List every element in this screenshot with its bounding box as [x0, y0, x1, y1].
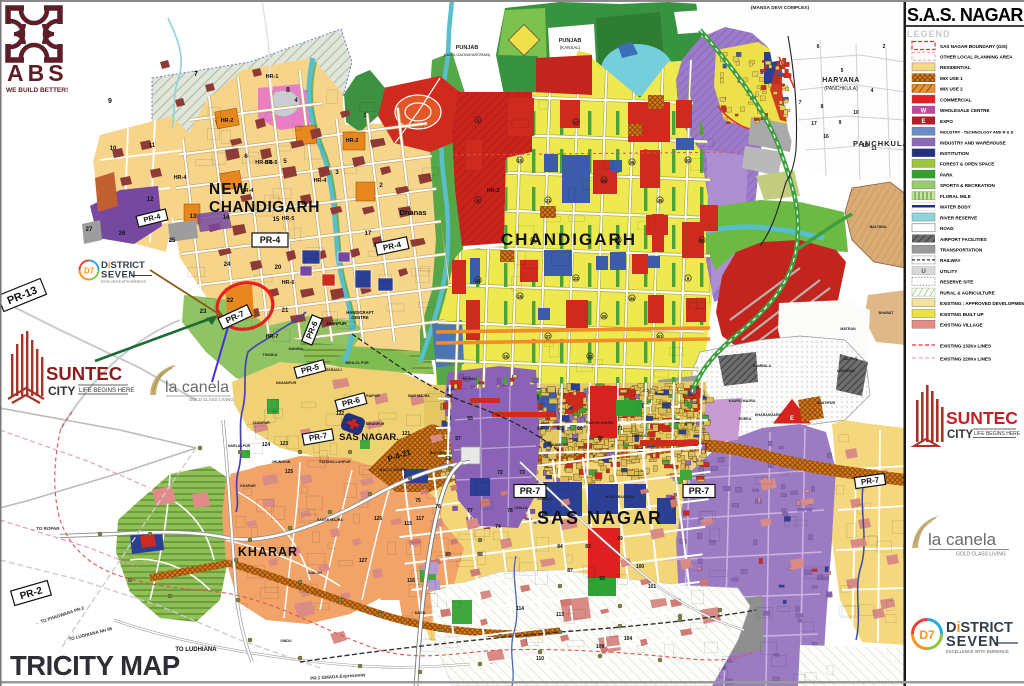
svg-text:BALONGI: BALONGI — [430, 451, 447, 455]
svg-text:64: 64 — [537, 426, 543, 432]
svg-text:22: 22 — [227, 298, 234, 304]
svg-text:MIX USE 2: MIX USE 2 — [940, 87, 963, 92]
svg-text:121: 121 — [402, 431, 411, 437]
svg-text:26: 26 — [119, 231, 126, 237]
svg-text:SEVEN: SEVEN — [946, 634, 1000, 650]
svg-text:15: 15 — [273, 217, 280, 223]
svg-text:KHARAR: KHARAR — [240, 484, 256, 488]
svg-text:RAIPUR: RAIPUR — [366, 394, 380, 398]
svg-text:EXISTING 132Kv LINES: EXISTING 132Kv LINES — [940, 344, 991, 349]
svg-text:D7: D7 — [84, 267, 95, 276]
svg-text:MATRAN: MATRAN — [840, 327, 856, 331]
svg-text:SAS NAGAR.: SAS NAGAR. — [339, 432, 399, 443]
svg-text:KHARAR: KHARAR — [238, 545, 298, 559]
svg-text:108: 108 — [596, 644, 605, 650]
svg-text:122: 122 — [336, 411, 345, 417]
svg-text:17: 17 — [811, 121, 817, 127]
svg-text:SPORTS & RECREATION: SPORTS & RECREATION — [940, 183, 995, 188]
svg-text:JALPUR: JALPUR — [843, 357, 858, 361]
svg-text:PARK: PARK — [940, 172, 953, 177]
svg-text:INDUSTRY AND WAREHOUSE: INDUSTRY AND WAREHOUSE — [940, 140, 1006, 145]
svg-text:FOREST & OPEN SPACE: FOREST & OPEN SPACE — [940, 162, 994, 167]
svg-text:8: 8 — [821, 104, 824, 110]
svg-text:15: 15 — [504, 354, 509, 359]
svg-text:EXCELLENCE WITH EMINENCE: EXCELLENCE WITH EMINENCE — [101, 280, 146, 284]
svg-text:BACLO MAJRA: BACLO MAJRA — [380, 468, 407, 472]
svg-text:18: 18 — [862, 143, 868, 149]
svg-text:TARAULI: TARAULI — [326, 368, 342, 372]
svg-text:RESIDENTIAL: RESIDENTIAL — [940, 65, 971, 70]
svg-text:HR-5: HR-5 — [265, 160, 278, 166]
svg-text:HR-2: HR-2 — [487, 188, 500, 194]
svg-text:SIRANPUR: SIRANPUR — [366, 422, 385, 426]
svg-text:70: 70 — [597, 436, 603, 442]
svg-text:101: 101 — [648, 584, 657, 590]
svg-text:HR-2: HR-2 — [221, 118, 234, 124]
svg-text:93: 93 — [599, 576, 605, 582]
svg-text:27: 27 — [86, 227, 93, 233]
svg-text:RURKA: RURKA — [739, 417, 752, 421]
svg-text:24: 24 — [224, 262, 231, 268]
svg-text:30: 30 — [602, 314, 607, 319]
svg-text:21: 21 — [282, 308, 289, 314]
svg-text:PUNJAB: PUNJAB — [559, 38, 582, 44]
svg-text:TO LUDHIANA: TO LUDHIANA — [175, 647, 217, 653]
svg-text:66: 66 — [577, 426, 583, 432]
svg-text:CHILLA: CHILLA — [514, 506, 528, 510]
svg-text:12: 12 — [147, 197, 154, 203]
svg-text:7: 7 — [799, 100, 802, 106]
svg-text:87: 87 — [567, 568, 573, 574]
svg-text:HARLALPUR: HARLALPUR — [228, 444, 251, 448]
svg-text:BALTANA: BALTANA — [870, 225, 887, 229]
svg-text:2: 2 — [883, 44, 886, 50]
svg-text:INDUSTRY - TECHNOLOGY AND R &: INDUSTRY - TECHNOLOGY AND R & D — [940, 130, 1014, 135]
svg-text:HR-4: HR-4 — [174, 175, 188, 181]
svg-text:MAULI BAIDWAN: MAULI BAIDWAN — [605, 495, 635, 499]
svg-text:SHATIPUR: SHATIPUR — [817, 401, 836, 405]
svg-text:116: 116 — [407, 578, 415, 584]
svg-text:62: 62 — [445, 456, 451, 462]
svg-text:10: 10 — [853, 110, 859, 116]
svg-text:43: 43 — [476, 278, 481, 283]
svg-text:8: 8 — [286, 87, 290, 94]
svg-text:HR-4: HR-4 — [314, 178, 328, 184]
svg-text:(PANCHKULA): (PANCHKULA) — [824, 86, 858, 92]
svg-text:13: 13 — [190, 214, 197, 220]
svg-text:SAS NAGAR BOUNDARY (GIS): SAS NAGAR BOUNDARY (GIS) — [940, 44, 1008, 49]
svg-text:73: 73 — [519, 470, 525, 476]
svg-text:DAON: DAON — [415, 611, 426, 615]
svg-text:25: 25 — [169, 238, 176, 244]
svg-text:57: 57 — [455, 436, 461, 442]
svg-text:E: E — [921, 119, 925, 125]
svg-text:31: 31 — [546, 198, 551, 203]
svg-text:9: 9 — [108, 98, 112, 105]
svg-text:HR-4: HR-4 — [241, 188, 255, 194]
svg-text:← TO ROPAR: ← TO ROPAR — [30, 526, 60, 531]
svg-text:AIRPORT FACILITIES: AIRPORT FACILITIES — [940, 237, 987, 242]
svg-text:9: 9 — [839, 120, 842, 126]
svg-text:OTHER LOCAL PLANNING AREA: OTHER LOCAL PLANNING AREA — [940, 55, 1013, 60]
svg-text:ROAD: ROAD — [940, 226, 954, 231]
svg-text:Dhanas: Dhanas — [399, 208, 426, 217]
svg-text:THASKA: THASKA — [263, 353, 278, 357]
svg-text:HR-7: HR-7 — [266, 334, 279, 340]
svg-text:89: 89 — [445, 552, 451, 558]
svg-text:4: 4 — [871, 88, 874, 94]
svg-text:84: 84 — [557, 544, 563, 550]
svg-text:E: E — [790, 416, 794, 422]
svg-text:11: 11 — [871, 146, 877, 152]
svg-text:ABS: ABS — [7, 60, 68, 86]
svg-text:EXCELLENCE WITH EMINENCE: EXCELLENCE WITH EMINENCE — [946, 649, 1009, 654]
svg-text:14: 14 — [223, 215, 230, 221]
svg-text:JHUNGIAN: JHUNGIAN — [272, 460, 291, 464]
svg-text:(NAYA GAON/KARORAN): (NAYA GAON/KARORAN) — [444, 52, 491, 57]
svg-text:44: 44 — [630, 296, 635, 301]
svg-text:37: 37 — [546, 334, 551, 339]
svg-text:17: 17 — [365, 231, 372, 237]
svg-text:EXISTING VILLAGE: EXISTING VILLAGE — [940, 323, 983, 328]
svg-text:MANIMA: MANIMA — [289, 347, 304, 351]
svg-text:PUNJAB: PUNJAB — [456, 45, 479, 51]
svg-text:23: 23 — [574, 276, 579, 281]
svg-text:PR-7: PR-7 — [520, 486, 541, 496]
svg-text:SANTE MAJRA: SANTE MAJRA — [317, 518, 343, 522]
svg-text:45: 45 — [658, 198, 663, 203]
svg-text:7: 7 — [194, 71, 198, 78]
svg-text:72: 72 — [497, 470, 503, 476]
svg-text:PR-4: PR-4 — [260, 235, 281, 245]
svg-text:D7: D7 — [919, 628, 935, 642]
svg-text:HARYANA: HARYANA — [822, 77, 860, 84]
svg-text:99: 99 — [617, 536, 623, 542]
svg-text:114: 114 — [516, 606, 524, 612]
svg-text:HASANPUR: HASANPUR — [276, 381, 297, 385]
svg-text:JHANPUR: JHANPUR — [326, 321, 346, 326]
svg-text:(KANSAL): (KANSAL) — [560, 45, 581, 50]
svg-text:KAMBALA: KAMBALA — [753, 364, 772, 368]
svg-text:74: 74 — [495, 524, 501, 530]
svg-text:SUNTEC: SUNTEC — [46, 363, 122, 384]
svg-text:20: 20 — [275, 265, 282, 271]
svg-text:126: 126 — [374, 516, 383, 522]
svg-text:CITY: CITY — [48, 384, 75, 398]
svg-text:125: 125 — [285, 469, 294, 475]
svg-text:DHARANGARH: DHARANGARH — [755, 413, 782, 417]
svg-text:SINDU: SINDU — [280, 639, 292, 643]
svg-text:55: 55 — [467, 416, 473, 422]
svg-text:TRANSPORTATION: TRANSPORTATION — [940, 248, 983, 253]
svg-text:104: 104 — [624, 636, 633, 642]
svg-text:65: 65 — [557, 426, 563, 432]
svg-text:KAURU MAJRA: KAURU MAJRA — [729, 399, 756, 403]
svg-text:115: 115 — [404, 521, 412, 527]
svg-text:MANAULI: MANAULI — [632, 434, 649, 438]
svg-text:UTILITY: UTILITY — [940, 269, 957, 274]
svg-text:17: 17 — [574, 120, 579, 125]
svg-text:MIX USE 1: MIX USE 1 — [940, 76, 963, 81]
svg-text:HR-1: HR-1 — [266, 74, 279, 80]
svg-text:WE BUILD BETTER!: WE BUILD BETTER! — [6, 87, 68, 94]
svg-text:LIFE BEGINS HERE: LIFE BEGINS HERE — [974, 431, 1021, 437]
svg-text:GOLD CLASS LIVING: GOLD CLASS LIVING — [956, 552, 1006, 558]
svg-text:RURAL & AGRICULTURE: RURAL & AGRICULTURE — [940, 290, 995, 295]
svg-text:LEGEND: LEGEND — [907, 29, 951, 39]
svg-text:75: 75 — [415, 498, 421, 504]
svg-text:RAIPUR KHURD: RAIPUR KHURD — [586, 421, 614, 425]
svg-text:CITY: CITY — [947, 429, 974, 441]
svg-text:117: 117 — [416, 516, 424, 522]
svg-text:24: 24 — [602, 178, 607, 183]
svg-text:SUNTEC: SUNTEC — [946, 408, 1018, 428]
svg-text:WATER BODY: WATER BODY — [940, 205, 971, 210]
svg-text:38: 38 — [630, 160, 635, 165]
svg-text:EXISTING BUILT UP: EXISTING BUILT UP — [940, 312, 984, 317]
svg-text:RAILWAY: RAILWAY — [940, 258, 961, 263]
svg-text:100: 100 — [636, 564, 645, 570]
svg-text:U: U — [921, 269, 925, 275]
svg-text:GOLD CLASS LIVING: GOLD CLASS LIVING — [189, 397, 234, 402]
svg-text:123: 123 — [280, 441, 289, 447]
svg-text:(MANSA DEVI COMPLEX): (MANSA DEVI COMPLEX) — [751, 5, 810, 11]
svg-text:CHANDIGARH: CHANDIGARH — [501, 230, 637, 249]
svg-text:127: 127 — [359, 558, 368, 564]
svg-text:RESERVE SITE: RESERVE SITE — [940, 280, 973, 285]
svg-text:16: 16 — [518, 294, 523, 299]
svg-text:BAR MAJRA: BAR MAJRA — [408, 394, 430, 398]
svg-text:88: 88 — [477, 552, 483, 558]
svg-text:S.A.S. NAGAR: S.A.S. NAGAR — [907, 5, 1023, 25]
svg-text:PR-7: PR-7 — [689, 486, 710, 496]
svg-text:71: 71 — [617, 426, 623, 432]
svg-text:5: 5 — [841, 68, 844, 74]
svg-text:22: 22 — [588, 354, 593, 359]
svg-text:EXPO: EXPO — [940, 119, 953, 124]
svg-text:W: W — [921, 108, 927, 114]
svg-text:52: 52 — [686, 158, 691, 163]
svg-text:KUMBRA: KUMBRA — [552, 443, 568, 447]
svg-text:10: 10 — [518, 158, 523, 163]
svg-text:INSTITUTION: INSTITUTION — [940, 151, 970, 156]
svg-text:JANDPUR: JANDPUR — [252, 421, 270, 425]
svg-text:HR-5: HR-5 — [282, 216, 295, 222]
svg-text:COMMERCIAL: COMMERCIAL — [940, 97, 972, 102]
svg-text:BEHLOL PUR: BEHLOL PUR — [345, 361, 369, 365]
svg-text:WHOLESALE CENTRE: WHOLESALE CENTRE — [940, 108, 990, 113]
svg-text:10: 10 — [110, 146, 117, 152]
svg-text:CENTRE: CENTRE — [351, 315, 368, 320]
svg-text:KAILON: KAILON — [308, 571, 322, 575]
svg-text:83: 83 — [585, 544, 591, 550]
svg-text:la canela: la canela — [165, 379, 229, 396]
svg-text:77: 77 — [467, 508, 473, 514]
svg-text:124: 124 — [262, 442, 271, 448]
svg-text:EXISTING : APPROVED DEVELOPMEN: EXISTING : APPROVED DEVELOPMENT — [940, 301, 1024, 306]
svg-text:EXISTING 220Kv LINES: EXISTING 220Kv LINES — [940, 357, 991, 362]
svg-text:110: 110 — [536, 656, 544, 662]
svg-text:113: 113 — [556, 612, 564, 618]
svg-text:56: 56 — [447, 394, 453, 400]
svg-text:LANDRAN: LANDRAN — [837, 369, 855, 373]
svg-text:HR-2: HR-2 — [346, 138, 359, 144]
svg-text:LIFE BEGINS HERE: LIFE BEGINS HERE — [79, 388, 134, 394]
svg-text:SAS NAGAR: SAS NAGAR — [537, 508, 663, 528]
svg-text:11: 11 — [149, 143, 156, 149]
svg-text:FLORAL MILE: FLORAL MILE — [940, 194, 971, 199]
svg-text:CHANDIGARH: CHANDIGARH — [209, 199, 320, 216]
svg-text:23: 23 — [200, 309, 207, 315]
svg-text:50: 50 — [700, 238, 705, 243]
svg-text:76: 76 — [435, 504, 441, 510]
svg-text:16: 16 — [823, 134, 829, 140]
svg-text:BHABAT: BHABAT — [879, 311, 895, 315]
svg-text:78: 78 — [507, 508, 513, 514]
svg-text:MOHALI: MOHALI — [463, 377, 477, 381]
svg-text:RIVER RESERVE: RIVER RESERVE — [940, 215, 977, 220]
svg-text:la canela: la canela — [928, 530, 997, 549]
svg-text:HR-6: HR-6 — [282, 280, 295, 286]
svg-text:FATEHULLAHPUR: FATEHULLAHPUR — [319, 460, 351, 464]
svg-text:6: 6 — [817, 44, 820, 50]
svg-text:TRICITY MAP: TRICITY MAP — [10, 650, 180, 681]
